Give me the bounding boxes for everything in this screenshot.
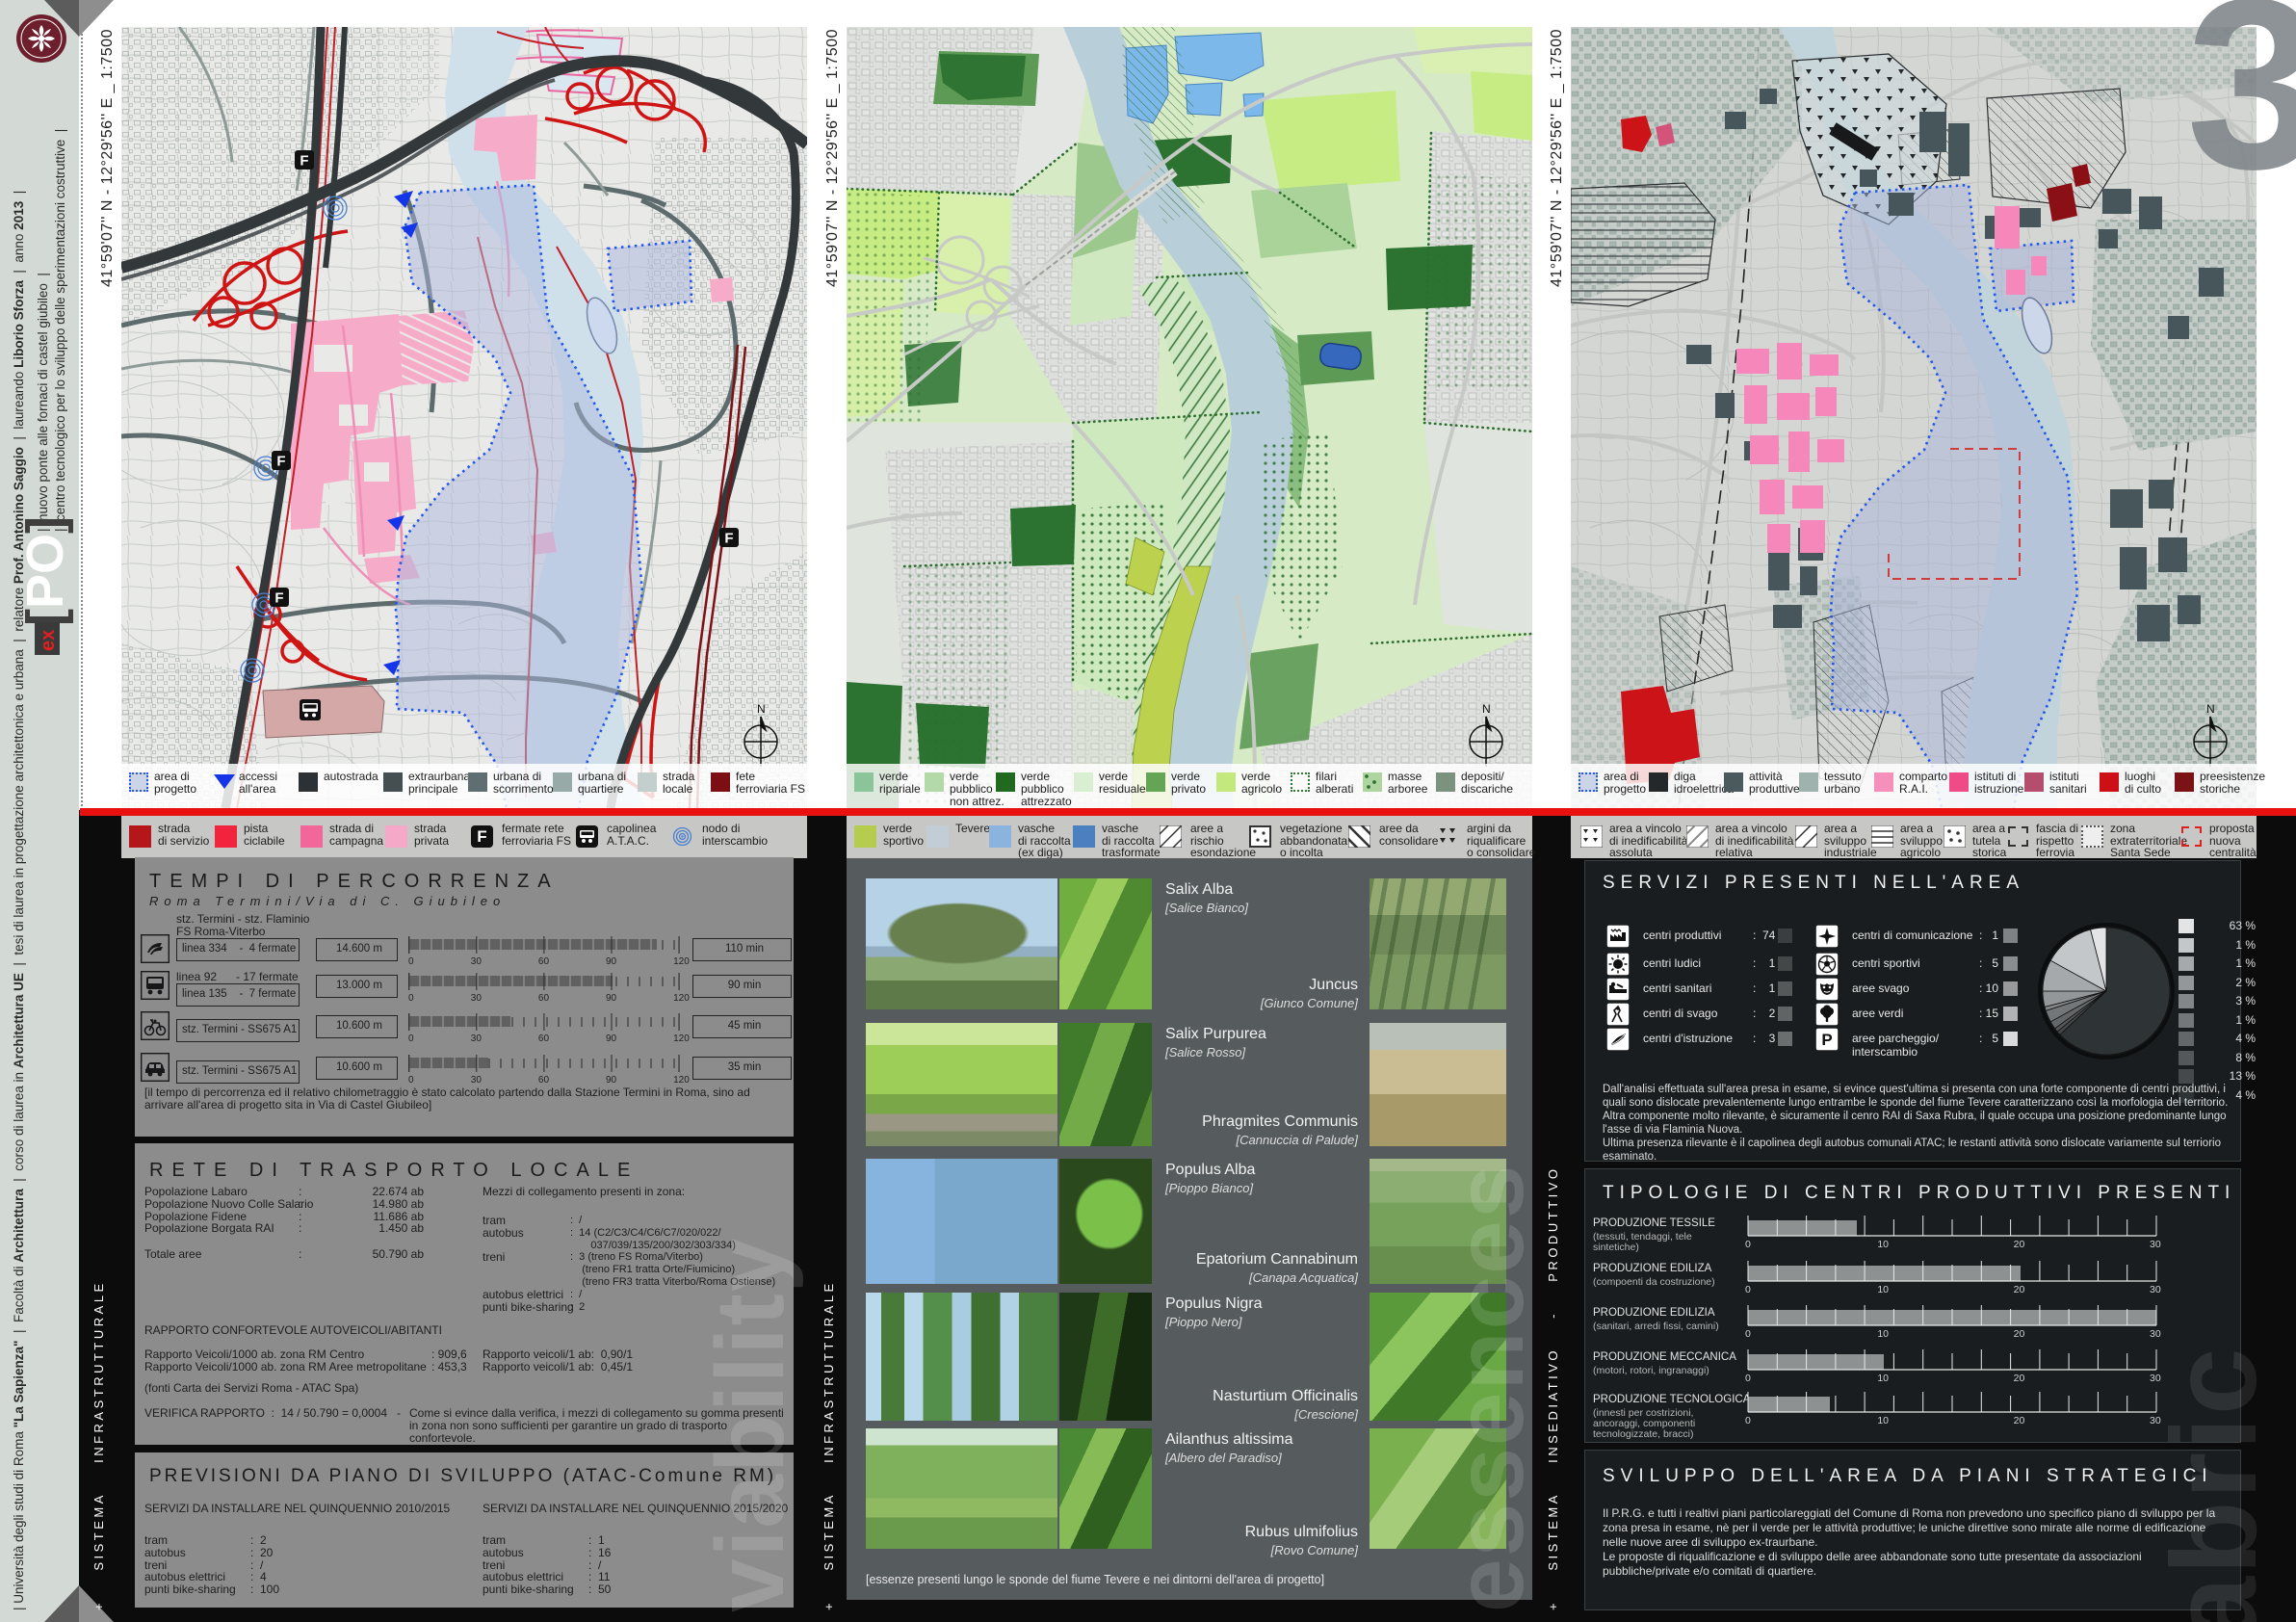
svg-text:90: 90 (606, 993, 617, 1004)
svg-text:30: 30 (471, 1075, 483, 1086)
svg-text:F: F (724, 531, 733, 547)
svg-text:20: 20 (2014, 1373, 2025, 1384)
svg-text:10: 10 (1877, 1373, 1889, 1384)
svg-text:60: 60 (538, 956, 550, 967)
svg-text:0: 0 (408, 1075, 414, 1086)
svg-text:20: 20 (2014, 1415, 2025, 1426)
svg-text:120: 120 (673, 956, 690, 967)
svg-text:N: N (1482, 702, 1491, 716)
svg-text:0: 0 (1745, 1373, 1751, 1384)
svg-text:20: 20 (2014, 1239, 2025, 1250)
svg-text:60: 60 (538, 1075, 550, 1086)
svg-text:P: P (1821, 1031, 1832, 1049)
svg-text:10: 10 (1877, 1328, 1889, 1340)
svg-text:30: 30 (2150, 1284, 2161, 1295)
svg-text:0: 0 (1745, 1239, 1751, 1250)
svg-text:60: 60 (538, 993, 550, 1004)
svg-text:30: 30 (471, 993, 483, 1004)
svg-text:N: N (757, 702, 766, 716)
svg-text:0: 0 (408, 1033, 414, 1044)
svg-text:0: 0 (1745, 1415, 1751, 1426)
svg-text:30: 30 (2150, 1239, 2161, 1250)
svg-text:90: 90 (606, 956, 617, 967)
svg-text:10: 10 (1877, 1284, 1889, 1295)
svg-text:90: 90 (606, 1033, 617, 1044)
svg-text:N: N (2206, 702, 2215, 716)
svg-text:30: 30 (2150, 1328, 2161, 1340)
svg-text:0: 0 (1745, 1328, 1751, 1340)
svg-text:0: 0 (408, 993, 414, 1004)
svg-text:120: 120 (673, 993, 690, 1004)
svg-text:30: 30 (471, 1033, 483, 1044)
svg-text:20: 20 (2014, 1328, 2025, 1340)
svg-text:10: 10 (1877, 1415, 1889, 1426)
svg-text:30: 30 (471, 956, 483, 967)
svg-text:120: 120 (673, 1033, 690, 1044)
svg-text:60: 60 (538, 1033, 550, 1044)
svg-text:F: F (276, 454, 285, 470)
svg-text:90: 90 (606, 1075, 617, 1086)
svg-text:20: 20 (2014, 1284, 2025, 1295)
svg-text:0: 0 (408, 956, 414, 967)
svg-text:120: 120 (673, 1075, 690, 1086)
svg-text:F: F (300, 153, 308, 170)
svg-text:F: F (274, 590, 283, 607)
svg-text:10: 10 (1877, 1239, 1889, 1250)
svg-text:0: 0 (1745, 1284, 1751, 1295)
